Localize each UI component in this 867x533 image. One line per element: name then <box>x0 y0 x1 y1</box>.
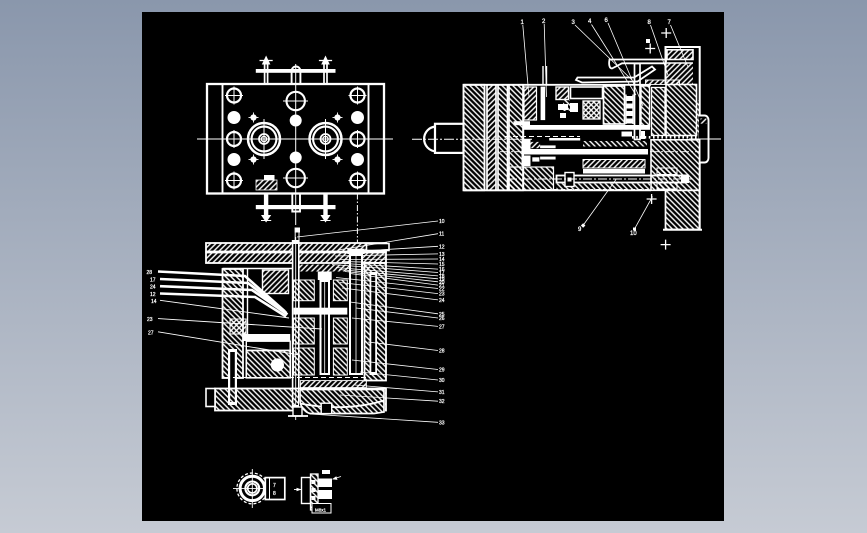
svg-text:23: 23 <box>147 317 153 323</box>
svg-text:3: 3 <box>572 20 576 26</box>
svg-text:14: 14 <box>151 299 157 305</box>
svg-text:24: 24 <box>150 285 156 291</box>
svg-text:32: 32 <box>439 399 445 405</box>
svg-text:M8x1: M8x1 <box>315 508 327 513</box>
svg-text:31: 31 <box>439 390 445 396</box>
svg-text:28: 28 <box>147 270 153 276</box>
svg-text:10: 10 <box>439 219 445 225</box>
svg-text:4: 4 <box>588 19 592 25</box>
svg-text:27: 27 <box>439 324 445 330</box>
svg-text:29: 29 <box>439 368 445 374</box>
svg-text:7: 7 <box>273 483 276 489</box>
svg-text:30: 30 <box>439 378 445 384</box>
svg-text:17: 17 <box>150 278 156 284</box>
svg-text:26: 26 <box>439 316 445 322</box>
svg-text:33: 33 <box>439 420 445 426</box>
svg-text:12: 12 <box>150 292 156 298</box>
svg-text:12: 12 <box>439 244 445 250</box>
svg-text:28: 28 <box>439 349 445 355</box>
svg-text:23: 23 <box>439 292 445 298</box>
svg-text:10: 10 <box>630 231 637 237</box>
svg-text:27: 27 <box>148 330 154 336</box>
svg-text:11: 11 <box>439 232 444 238</box>
svg-text:24: 24 <box>439 298 445 304</box>
svg-text:9: 9 <box>578 227 582 233</box>
svg-text:8: 8 <box>273 491 276 497</box>
